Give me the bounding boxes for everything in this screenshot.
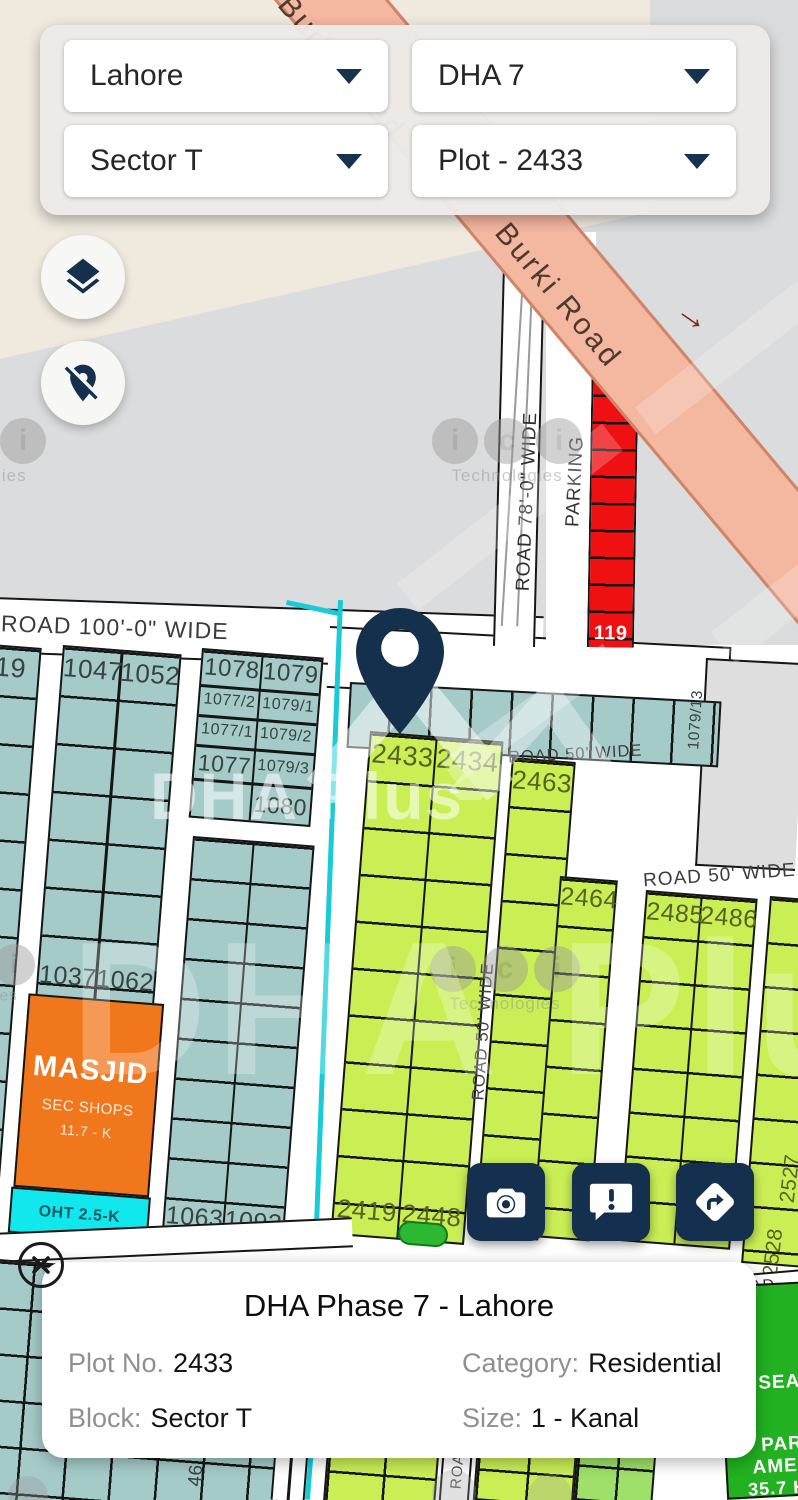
watermark-letter: i [536,418,582,464]
city-dropdown-value: Lahore [90,40,183,112]
selector-panel: Lahore DHA 7 Sector T Plot - 2433 [40,25,770,215]
watermark-brand: DHA Plus [150,758,464,834]
report-button[interactable] [572,1163,650,1241]
directions-button[interactable] [676,1163,754,1241]
camera-button[interactable] [467,1163,545,1241]
phase-dropdown-value: DHA 7 [438,40,525,112]
oht-label: OHT 2.5-K [11,1202,148,1229]
plot-label: 1047 [62,654,121,684]
caret-down-icon [684,154,710,169]
road-100-label: ROAD 100'-0" WIDE [1,612,229,643]
close-button[interactable] [18,1242,64,1288]
block-label: Block: [68,1403,142,1433]
report-icon [588,1179,634,1225]
size-value: 1 - Kanal [531,1403,639,1433]
category-value: Residential [588,1348,722,1378]
directions-icon [692,1179,738,1225]
app-screen: ROAD 100'-0" WIDE 134 119 Burki Road Bur… [0,0,798,1500]
info-card-title: DHA Phase 7 - Lahore [42,1288,756,1324]
plot-dropdown[interactable]: Plot - 2433 [412,125,736,197]
plot-info-card: DHA Phase 7 - Lahore Plot No.2433 Catego… [42,1262,756,1458]
city-dropdown[interactable]: Lahore [64,40,388,112]
park-label: 35.7 K [714,1476,798,1500]
plot-label: 1052 [120,659,179,689]
layers-button[interactable] [41,235,125,319]
plot-no-field: Plot No.2433 [68,1348,233,1379]
caret-down-icon [336,69,362,84]
watermark-caption: Technologies [432,466,582,486]
plot-dropdown-value: Plot - 2433 [438,125,583,197]
block-value: Sector T [151,1403,253,1433]
plot-label: 1077/2 [199,691,259,712]
watermark-tech: i c i Technologies [0,418,46,486]
plot-no-value: 2433 [173,1348,233,1378]
watermark-caption: Technologies [0,466,46,486]
layers-icon [61,255,105,299]
road-arrow-icon: → [667,287,721,342]
category-label: Category: [462,1348,579,1378]
category-field: Category:Residential [462,1348,722,1379]
size-label: Size: [462,1403,522,1433]
phase-dropdown[interactable]: DHA 7 [412,40,736,112]
plot-label: 1077/1 [197,721,257,742]
caret-down-icon [684,69,710,84]
sector-dropdown-value: Sector T [90,125,203,197]
map-pin-icon [352,602,448,742]
location-off-icon [61,361,105,405]
watermark-letter: i [0,944,35,985]
size-field: Size:1 - Kanal [462,1403,639,1434]
close-icon [28,1252,54,1278]
plot-no-label: Plot No. [68,1348,164,1378]
caret-down-icon [336,154,362,169]
watermark-letter: i [432,418,478,464]
my-location-button[interactable] [41,341,125,425]
masjid-sub: 11.7 - K [20,1119,153,1143]
watermark-letter: i [0,418,46,464]
block-field: Block:Sector T [68,1403,252,1434]
watermark-letter: c [484,418,530,464]
camera-icon [483,1179,529,1225]
watermark-tech: i c i Technologies [432,418,582,486]
watermark-tech: i c i Technologies [0,944,35,1005]
plot-label: 1019 [0,650,39,684]
sector-dropdown[interactable]: Sector T [64,125,388,197]
watermark-caption: Technologies [0,987,35,1005]
green-strip [397,1220,449,1248]
plot-label: 1078 [202,655,263,684]
watermark-brand: DHA Plus [70,900,798,1118]
